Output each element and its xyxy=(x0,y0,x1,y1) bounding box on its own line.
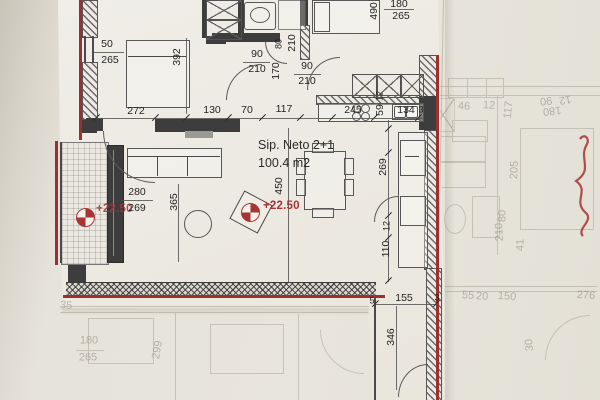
wardrobe-box-2 xyxy=(376,74,402,98)
dim-fraction-bar xyxy=(384,9,414,10)
wall-bedroom2-left-lower xyxy=(300,25,310,60)
coffee-table-round xyxy=(184,210,212,238)
dining-chair-left-2 xyxy=(296,179,306,196)
floor-plan-photo: +22.50 +22.50 Sip. Neto 2+1 100.4 m2 502… xyxy=(0,0,600,400)
shaft-box-2 xyxy=(206,19,242,40)
bed-2-pillow xyxy=(314,2,330,32)
red-wall-line-right xyxy=(436,55,439,400)
dim-fraction-bar xyxy=(94,52,124,53)
wall-corridor-right xyxy=(426,268,442,400)
dim-line-365 xyxy=(178,184,179,262)
bathroom-sink-basin xyxy=(250,7,270,23)
sheet-edge-bottom xyxy=(62,306,369,307)
wall-balcony-pier-bottom xyxy=(68,262,86,284)
dim-fraction-bar xyxy=(121,200,153,201)
dining-chair-right-2 xyxy=(344,179,354,196)
dim-line-155 xyxy=(375,304,437,305)
sofa-cushion-divider xyxy=(187,156,188,176)
appliance xyxy=(400,196,426,226)
sheet-shadow-right xyxy=(445,0,455,400)
window-glazing-line xyxy=(92,36,94,62)
wardrobe-box-3 xyxy=(400,74,424,98)
dining-chair-right-1 xyxy=(344,158,354,175)
dim-fraction-bar xyxy=(294,74,321,75)
dining-table xyxy=(304,151,346,210)
shower-tray xyxy=(278,0,306,30)
bed-1-pillow-line xyxy=(128,56,186,57)
room-area-label: 100.4 m2 xyxy=(258,156,310,170)
wall-left-pier-mid xyxy=(82,62,98,120)
balcony-rail-line xyxy=(60,142,62,263)
dim-line-right-vert xyxy=(388,120,389,282)
dim-line-346 xyxy=(396,306,397,390)
level-marker-icon-center xyxy=(241,203,260,222)
red-wall-line-bottom xyxy=(63,295,385,298)
sheet-shadow-bottom xyxy=(62,308,369,316)
room-name-label: Sip. Neto 2+1 xyxy=(258,138,334,152)
level-marker-text-left: +22.50 xyxy=(96,203,133,215)
wall-left-pier-top xyxy=(82,0,98,38)
cooktop-burner xyxy=(361,112,370,121)
kitchen-sink-basin-left xyxy=(394,106,406,118)
wardrobe-box-1 xyxy=(352,74,378,98)
shaft-box-1 xyxy=(206,0,242,21)
level-marker-text-center: +22.50 xyxy=(263,200,300,212)
dining-chair-bottom xyxy=(312,208,334,218)
red-wall-line-balcony xyxy=(55,141,58,265)
red-pen-scribble xyxy=(568,135,600,240)
kitchen-sink-basin-right xyxy=(406,106,418,118)
fridge-handle xyxy=(405,156,419,157)
sofa-cushion-divider xyxy=(157,156,158,176)
bed-1 xyxy=(126,40,190,108)
red-wall-line-left xyxy=(79,0,82,140)
cooktop-burner xyxy=(352,112,361,121)
level-marker-icon-left xyxy=(76,208,95,227)
dim-line-392 xyxy=(186,38,187,114)
fridge xyxy=(400,140,426,176)
tv-unit xyxy=(185,131,213,138)
dim-fraction-bar xyxy=(243,62,270,63)
corridor-left-line xyxy=(374,295,376,400)
window-glazing-line xyxy=(84,36,86,62)
